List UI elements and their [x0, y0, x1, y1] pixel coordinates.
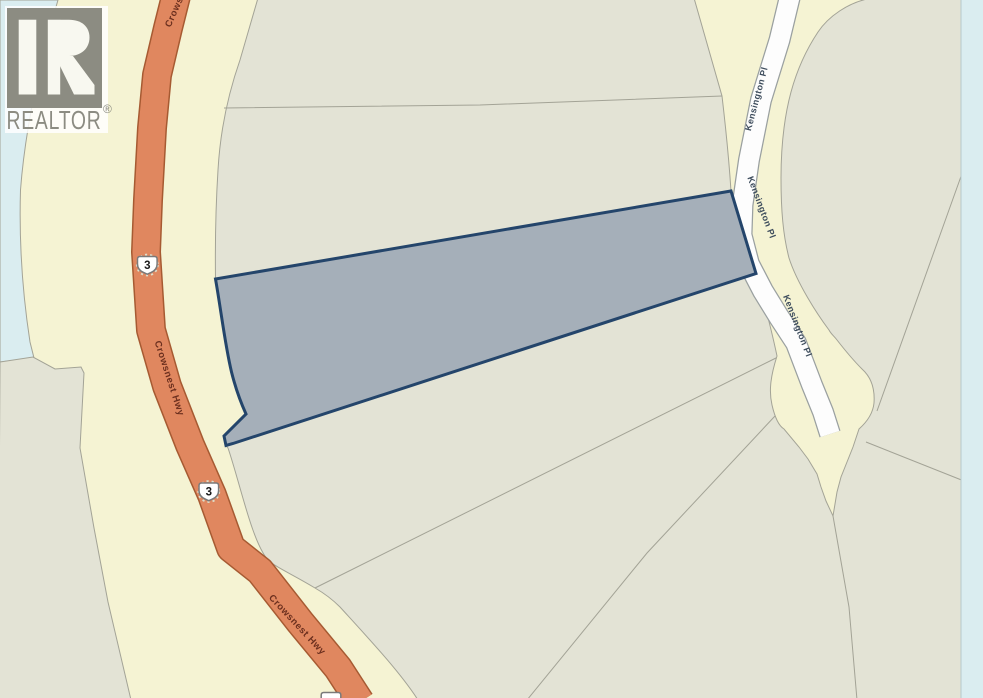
- svg-text:3: 3: [206, 486, 212, 498]
- svg-text:3: 3: [144, 260, 150, 272]
- svg-text:®: ®: [103, 102, 112, 116]
- svg-text:REALTOR: REALTOR: [7, 105, 102, 135]
